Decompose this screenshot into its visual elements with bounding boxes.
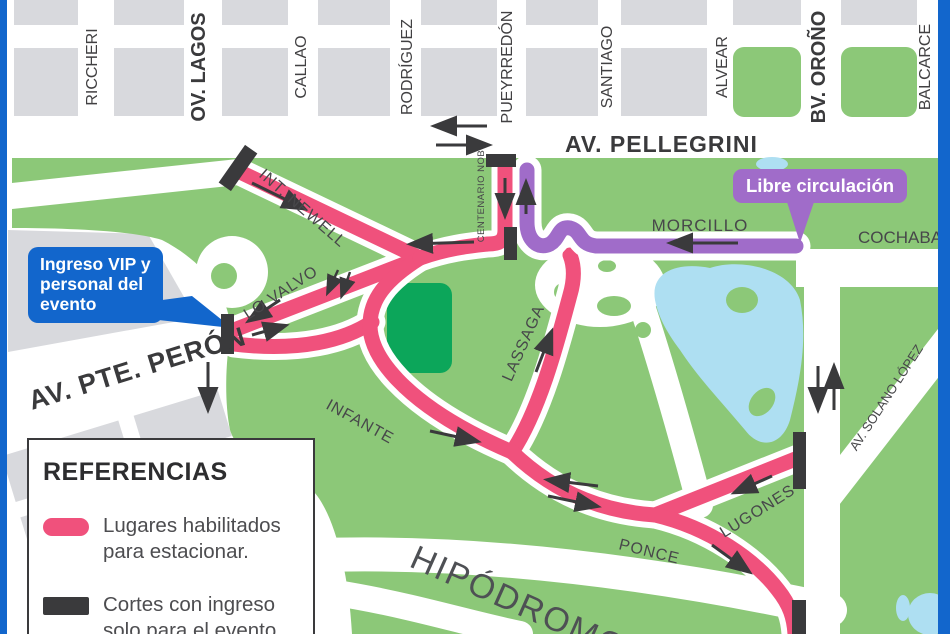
street-callao: CALLAO bbox=[293, 35, 310, 98]
street-balcarce: BALCARCE bbox=[917, 24, 934, 110]
vip-entrance-badge: Ingreso VIP y personal del evento bbox=[28, 247, 163, 323]
label-centenario-nob: CENTENARIO NOB bbox=[476, 150, 487, 243]
street-riccheri: RICCHERI bbox=[84, 28, 101, 105]
vip-badge-line3: evento bbox=[40, 295, 151, 315]
vip-badge-line2: personal del bbox=[40, 275, 151, 295]
label-pellegrini: AV. PELLEGRINI bbox=[565, 131, 758, 157]
street-rodriguez: RODRÍGUEZ bbox=[397, 19, 416, 115]
corte-ponce bbox=[792, 600, 806, 634]
legend-closure-line1: Cortes con ingreso bbox=[103, 592, 282, 618]
border-left bbox=[0, 0, 7, 634]
legend-box: REFERENCIAS Lugares habilitados para est… bbox=[27, 438, 315, 634]
corte-lugones bbox=[793, 432, 806, 489]
legend-parking-line2: para estacionar. bbox=[103, 539, 281, 565]
vip-badge-line1: Ingreso VIP y bbox=[40, 255, 151, 275]
legend-title: REFERENCIAS bbox=[43, 458, 313, 487]
legend-item-parking: Lugares habilitados para estacionar. bbox=[43, 513, 313, 564]
corte-pellegrini bbox=[486, 154, 516, 167]
top-street-labels: RICCHERI OV. LAGOS CALLAO RODRÍGUEZ PUEY… bbox=[84, 11, 934, 124]
arrow-toproad-west bbox=[412, 242, 474, 244]
event-traffic-map: RICCHERI OV. LAGOS CALLAO RODRÍGUEZ PUEY… bbox=[0, 0, 950, 634]
closure-bar-swatch-icon bbox=[43, 597, 89, 615]
corte-centenario bbox=[504, 227, 517, 260]
street-pueyrredon: PUEYRREDÓN bbox=[497, 11, 516, 124]
street-santiago: SANTIAGO bbox=[599, 26, 616, 109]
legend-parking-line1: Lugares habilitados bbox=[103, 513, 281, 539]
street-alvear: ALVEAR bbox=[714, 36, 731, 98]
legend-item-closure: Cortes con ingreso solo para el evento. bbox=[43, 592, 313, 634]
free-circulation-label: Libre circulación bbox=[746, 175, 894, 196]
legend-closure-line2: solo para el evento. bbox=[103, 618, 282, 634]
free-circulation-badge: Libre circulación bbox=[733, 169, 907, 203]
street-bv-orono: BV. OROÑO bbox=[807, 11, 830, 124]
label-cochabamba: COCHABAMBA bbox=[858, 228, 950, 247]
plaza-green-dot bbox=[211, 263, 237, 289]
street-ov-lagos: OV. LAGOS bbox=[188, 12, 210, 121]
label-morcillo: MORCILLO bbox=[652, 216, 749, 235]
pink-road-swatch-icon bbox=[43, 518, 89, 536]
border-right bbox=[938, 0, 950, 634]
